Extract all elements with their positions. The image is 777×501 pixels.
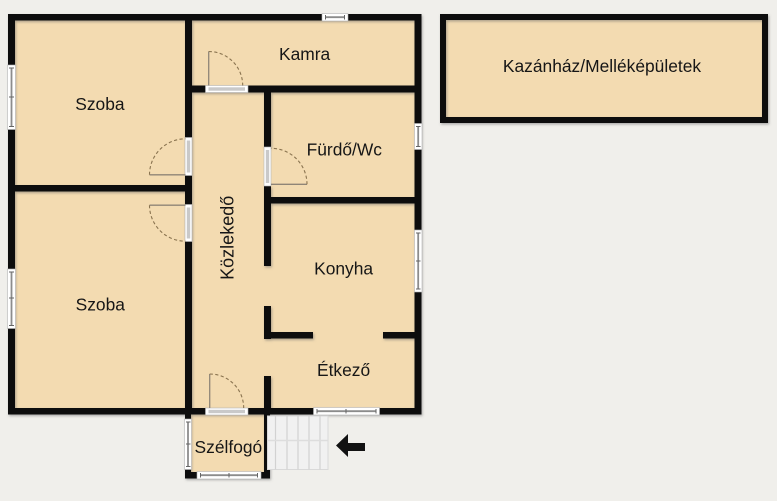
svg-text:Szoba: Szoba — [76, 295, 126, 315]
svg-text:Kazánház/Melléképületek: Kazánház/Melléképületek — [503, 56, 701, 76]
svg-text:Étkező: Étkező — [317, 360, 370, 380]
svg-text:Konyha: Konyha — [314, 258, 373, 278]
svg-text:Fürdő/Wc: Fürdő/Wc — [307, 140, 383, 160]
svg-text:Szélfogó: Szélfogó — [195, 437, 263, 457]
svg-text:Kamra: Kamra — [279, 44, 331, 64]
svg-text:Szoba: Szoba — [75, 94, 125, 114]
svg-text:Közlekedő: Közlekedő — [218, 196, 238, 280]
